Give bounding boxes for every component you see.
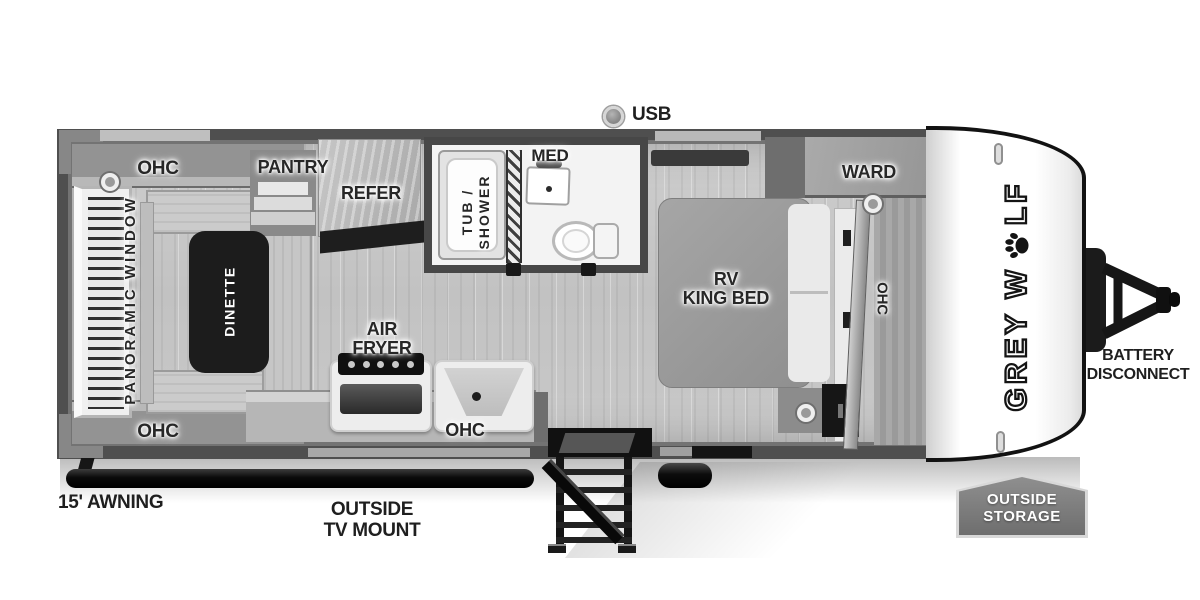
- tub-shower-label-line1: TUB /: [459, 189, 475, 236]
- sink-drain: [546, 186, 552, 192]
- bathroom-door-post: [506, 263, 521, 276]
- pillow-divider: [790, 291, 828, 294]
- bedroom-ohc-label: OHC: [876, 268, 891, 330]
- entry-landing: [559, 433, 635, 453]
- toilet-seat: [562, 229, 590, 253]
- bed-label-line2: KING BED: [683, 288, 769, 308]
- wardrobe-shadow: [765, 137, 805, 198]
- window-top-rear: [100, 130, 210, 141]
- burner-icon: [407, 361, 414, 368]
- burner-icon: [392, 361, 399, 368]
- kitchen-half-wall: [534, 392, 548, 442]
- storage-label-line1: OUTSIDE: [987, 491, 1057, 508]
- tv-mount-label-line2: TV MOUNT: [324, 520, 421, 541]
- rear-ohc-bottom-label: OHC: [116, 421, 200, 443]
- med-cabinet-label: MED: [519, 146, 581, 166]
- burner-icon: [363, 361, 370, 368]
- step-foot: [618, 544, 636, 553]
- brand-text-part2: LF: [1000, 181, 1034, 226]
- outside-storage-badge: OUTSIDE STORAGE: [956, 474, 1088, 538]
- battery-disconnect-label: BATTERY DISCONNECT: [1080, 346, 1196, 384]
- outside-tv-mount-label: OUTSIDE TV MOUNT: [314, 499, 430, 541]
- toilet-tank: [593, 223, 619, 259]
- burner-icon: [377, 361, 384, 368]
- usb-label: USB: [632, 104, 671, 126]
- corner-trim: [59, 414, 71, 458]
- step-foot: [548, 544, 566, 553]
- tv-mount-label-line1: OUTSIDE: [331, 499, 413, 520]
- corner-trim: [59, 130, 71, 174]
- shower-door: [506, 150, 522, 263]
- window-top-bedroom: [655, 131, 761, 141]
- air-fryer-label-line2: FRYER: [352, 338, 411, 358]
- pantry-label: PANTRY: [252, 157, 334, 178]
- air-fryer-label: AIR FRYER: [342, 320, 422, 358]
- speaker-knob: [864, 195, 882, 213]
- floorplan-scene: USB PANORAMIC WINDOW OHC OHC DINETTE PAN…: [0, 0, 1200, 600]
- awning-label: 15' AWNING: [58, 492, 163, 514]
- battery-label-line2: DISCONNECT: [1087, 366, 1190, 383]
- kitchen-faucet-icon: [472, 392, 481, 401]
- bed-label-line1: RV: [714, 269, 738, 289]
- kitchen-ohc-label: OHC: [430, 420, 500, 441]
- bedroom-shelf: [651, 150, 749, 166]
- wardrobe-label: WARD: [822, 162, 916, 183]
- tub-shower-label: TUB / SHOWER: [459, 162, 495, 262]
- dinette-bench-trim: [140, 202, 154, 404]
- rear-ohc-top-label: OHC: [116, 158, 200, 180]
- window-bottom-bedroom: [692, 446, 752, 458]
- panoramic-window-label: PANORAMIC WINDOW: [122, 190, 140, 410]
- burner-icon: [348, 361, 355, 368]
- pantry-shelf: [251, 212, 315, 225]
- pantry-shelf: [254, 197, 312, 210]
- pantry-shelf: [258, 182, 308, 195]
- brand-logo: GREY W LF: [998, 165, 1036, 427]
- storage-label-line2: STORAGE: [983, 508, 1060, 525]
- drawer-handle: [843, 230, 851, 246]
- wall-light-segment: [660, 447, 694, 456]
- bathroom-door-post: [581, 263, 596, 276]
- usb-indicator-icon: [603, 106, 624, 127]
- battery-label-line1: BATTERY: [1102, 347, 1174, 364]
- window-bottom-kitchen: [308, 448, 530, 457]
- dinette-label: DINETTE: [222, 257, 237, 347]
- cap-vent: [994, 143, 1003, 165]
- underbody-tank: [658, 463, 712, 488]
- step-rung: [556, 469, 632, 475]
- cap-vent: [996, 431, 1005, 453]
- paw-icon: [1004, 232, 1030, 259]
- air-fryer-label-line1: AIR: [367, 319, 397, 339]
- awning-tube: [66, 469, 534, 488]
- window-blinds: [88, 197, 124, 409]
- tub-shower-label-line2: SHOWER: [476, 175, 492, 250]
- dinette-bench-top: [146, 190, 266, 234]
- cabinet-handle: [838, 404, 843, 418]
- brand-text-part1: GREY W: [1000, 266, 1034, 411]
- air-fryer-oven: [340, 384, 422, 414]
- outside-storage-label: OUTSIDE STORAGE: [956, 491, 1088, 525]
- rv-king-bed-label: RV KING BED: [664, 270, 788, 308]
- refer-label: REFER: [330, 183, 412, 204]
- speaker-knob: [797, 404, 815, 422]
